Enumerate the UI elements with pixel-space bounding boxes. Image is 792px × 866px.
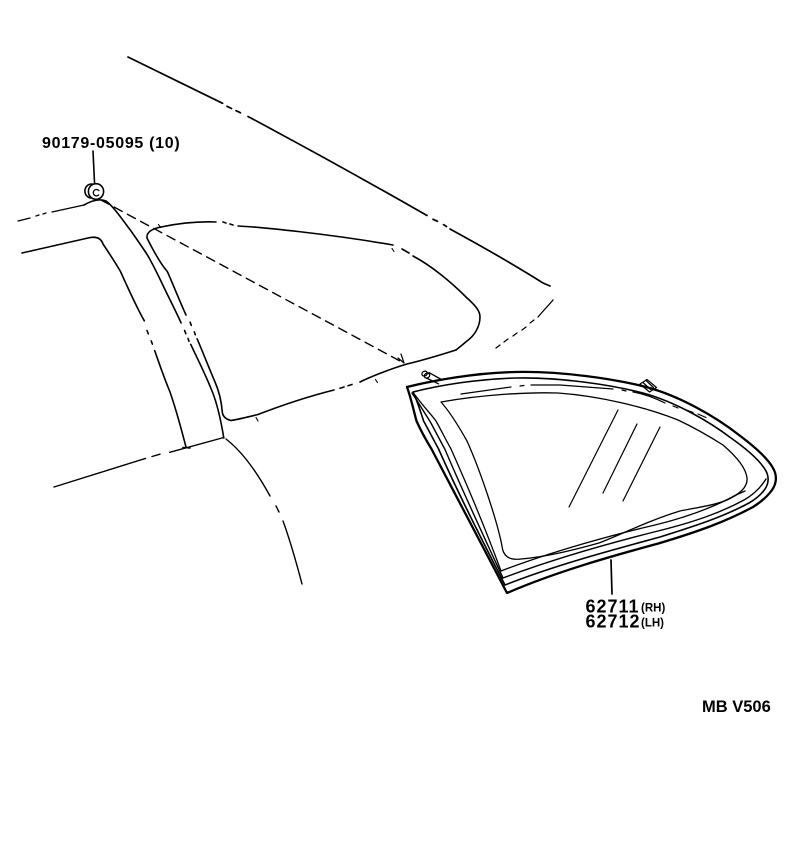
svg-text:(LH): (LH) <box>641 618 664 630</box>
svg-text:MB V506: MB V506 <box>702 698 771 716</box>
svg-text:62712: 62712 <box>586 612 641 632</box>
svg-text:90179-05095 (10): 90179-05095 (10) <box>42 135 180 152</box>
svg-text:(RH): (RH) <box>641 603 665 615</box>
